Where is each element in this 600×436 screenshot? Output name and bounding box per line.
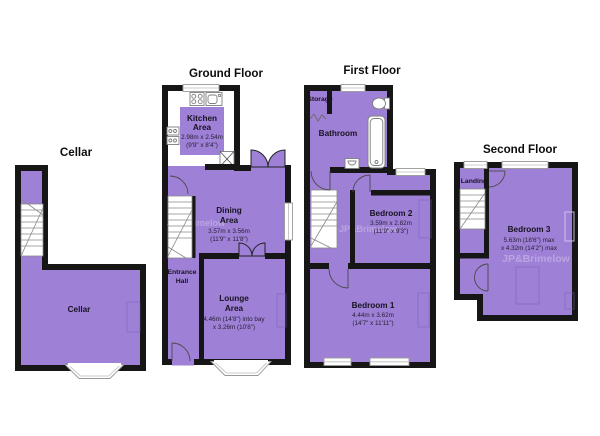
first-floor-title: First Floor <box>343 64 401 77</box>
lounge-label-2: Area <box>225 304 244 313</box>
ground-floorplan: Ground Floor JP&Brimelow <box>165 67 293 376</box>
toilet-icon <box>373 98 390 109</box>
bedroom2-left-wall <box>350 190 355 269</box>
bedroom1-label: Bedroom 1 <box>352 301 395 310</box>
second-window-right <box>502 162 548 169</box>
bedroom2-top-wall <box>371 190 433 196</box>
lounge-label-1: Lounge <box>219 294 249 303</box>
bedroom2-dims-metric: 3.59m x 2.82m <box>370 220 412 227</box>
bedroom2-label: Bedroom 2 <box>370 209 413 218</box>
bedroom-divider-left <box>305 263 329 269</box>
bedroom-divider-right <box>348 263 435 269</box>
second-window-left <box>464 162 487 169</box>
second-floorplan: Second Floor JP&Brimelow <box>457 143 575 318</box>
cellar-bay-window <box>65 363 124 379</box>
first-stairs-icon <box>311 190 337 248</box>
bedroom2-window <box>396 169 425 176</box>
bedroom1-window-left <box>324 358 351 366</box>
hall-lounge-wall <box>199 253 204 362</box>
landing-bottom-wall <box>457 253 489 259</box>
kitchen-dims-imperial: (9'9" x 8'4") <box>186 142 218 149</box>
kitchen-dims-metric: 2.98m x 2.54m <box>181 134 223 141</box>
bedroom3-dims-metric: 5.63m (18'6") max <box>503 237 555 244</box>
bedroom3-dims-imperial: x 4.32m (14'2") max <box>501 245 558 252</box>
floorplan-page: Cellar Cellar Ground Floor <box>0 0 600 436</box>
first-top-window <box>341 85 365 92</box>
french-doors <box>251 150 285 172</box>
bedroom1-window-right <box>370 358 409 366</box>
dining-side-window <box>285 203 293 240</box>
landing-label: Landing <box>461 178 487 185</box>
lounge-dims-imperial: x 3.26m (10'8") <box>213 324 255 331</box>
kitchen-sink-icon <box>206 93 222 106</box>
ground-top-window <box>183 85 219 92</box>
dining-lounge-wall-left <box>201 253 239 259</box>
dining-label-2: Area <box>220 216 239 225</box>
ground-stairs-icon <box>168 196 192 258</box>
stove-icon <box>190 93 204 106</box>
storage-label: Storage <box>307 96 333 103</box>
bedroom2-dims-imperial: (11'9" x 9'3") <box>374 228 409 235</box>
second-floor-title: Second Floor <box>483 143 558 156</box>
dining-dims-imperial: (11'9" x 11'8") <box>210 236 248 243</box>
watermark-second: JP&Brimelow <box>502 253 571 265</box>
bathroom-sink-icon <box>345 159 359 169</box>
bathroom-label: Bathroom <box>319 129 358 138</box>
entrance-hall-label-1: Entrance <box>167 269 196 276</box>
bathtub-icon <box>368 116 385 168</box>
kitchen-label-2: Area <box>193 123 212 132</box>
bedroom1-dims-imperial: (14'7" x 11'11") <box>352 320 393 327</box>
kitchen-dining-wall <box>205 164 235 170</box>
entrance-hall-label-2: Hall <box>176 278 189 285</box>
first-floorplan: First Floor JP&Brimelow <box>305 64 435 366</box>
cellar-outline <box>18 168 143 368</box>
cellar-title: Cellar <box>60 146 93 159</box>
cellar-room-label: Cellar <box>68 305 92 314</box>
floorplan-canvas: Cellar Cellar Ground Floor <box>0 0 600 436</box>
ground-floor-title: Ground Floor <box>189 67 264 80</box>
dining-dims-metric: 3.57m x 3.56m <box>208 228 250 235</box>
lounge-dims-metric: 4.46m (14'8") into bay <box>203 316 265 323</box>
dining-label-1: Dining <box>216 206 241 215</box>
cellar-floorplan: Cellar Cellar <box>18 146 143 379</box>
lounge-bay-window <box>211 360 271 376</box>
stair-wall <box>192 196 196 258</box>
kitchen-label-1: Kitchen <box>187 114 217 123</box>
cellar-stairs-icon <box>21 199 43 256</box>
bedroom3-label: Bedroom 3 <box>508 225 551 234</box>
second-stairs-icon <box>460 189 485 229</box>
bedroom1-dims-metric: 4.44m x 3.62m <box>352 312 394 319</box>
dining-lounge-wall-right <box>265 253 288 259</box>
